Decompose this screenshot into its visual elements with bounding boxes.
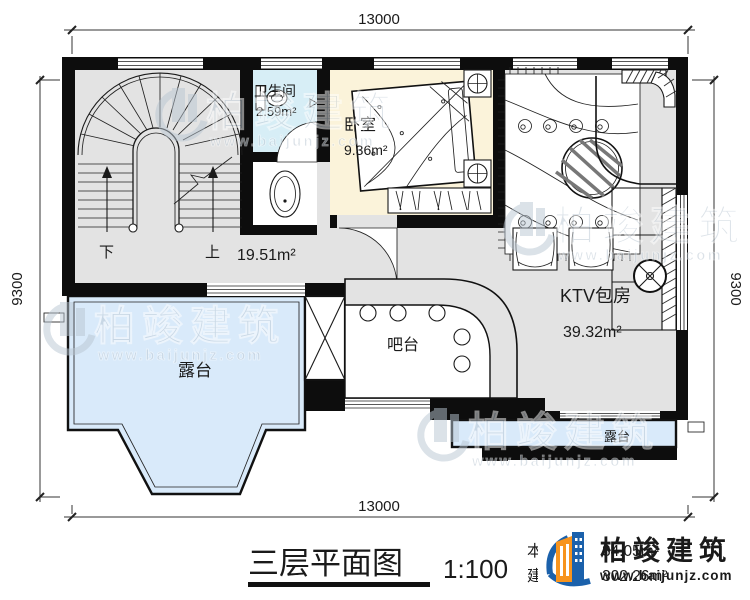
stair-down-label: 下 <box>99 244 114 261</box>
nightstand-icon <box>464 160 491 187</box>
floor-plan-canvas: 柏竣建筑 www.baijunjz.com 露台 <box>0 0 750 600</box>
ktv-label: KTV包房 <box>560 286 631 306</box>
terrace-small-bracket <box>688 422 704 432</box>
dimension-bottom: 13000 <box>64 498 695 521</box>
title-block: 三层平面图 1:100 本层面积: 84.05m² 建筑面积: 302.26m²… <box>248 526 733 590</box>
bar-stool-icon <box>390 305 406 321</box>
hall-area-label: 19.51m² <box>237 247 296 264</box>
bar-stool-icon <box>454 329 470 345</box>
bar-stool-icon <box>429 305 445 321</box>
terrace-sliding-door <box>207 283 305 296</box>
dim-top-label: 13000 <box>358 11 400 28</box>
bar-stool-icon <box>454 356 470 372</box>
bar-label: 吧台 <box>387 336 419 354</box>
brand-url: www.baijunjz.com <box>599 568 733 583</box>
bar-counter: 吧台 <box>345 279 517 398</box>
plan-title: 三层平面图 <box>248 546 403 581</box>
ktv-area-label: 39.32m² <box>563 324 622 341</box>
window <box>374 59 460 69</box>
wardrobe-icon <box>388 188 491 213</box>
newel-post <box>129 224 137 232</box>
basin-icon <box>270 171 300 217</box>
bar-stool-icon <box>360 305 376 321</box>
floor-plan-page: 柏竣建筑 www.baijunjz.com 露台 <box>0 0 750 600</box>
dim-right-label: 9300 <box>727 272 744 305</box>
brand-logo-icon <box>538 526 596 590</box>
dimension-top: 13000 <box>64 11 695 54</box>
window <box>513 59 577 69</box>
brand-name: 柏竣建筑 <box>600 535 732 566</box>
window <box>118 59 203 69</box>
dimension-left: 9300 <box>9 76 60 502</box>
nightstand-icon <box>464 70 491 97</box>
plan-scale: 1:100 <box>443 554 508 584</box>
newel-post <box>175 224 183 232</box>
plan-title-underline <box>248 582 430 587</box>
dimension-right: 9300 <box>692 76 744 502</box>
window <box>261 59 322 69</box>
stair-up-label: 上 <box>205 244 220 261</box>
floor-shaft-x <box>305 296 345 380</box>
ceiling-fan-icon <box>634 260 666 292</box>
dim-left-label: 9300 <box>9 272 26 305</box>
dim-bottom-label: 13000 <box>358 498 400 515</box>
bar-window <box>345 398 430 411</box>
window <box>612 59 668 69</box>
